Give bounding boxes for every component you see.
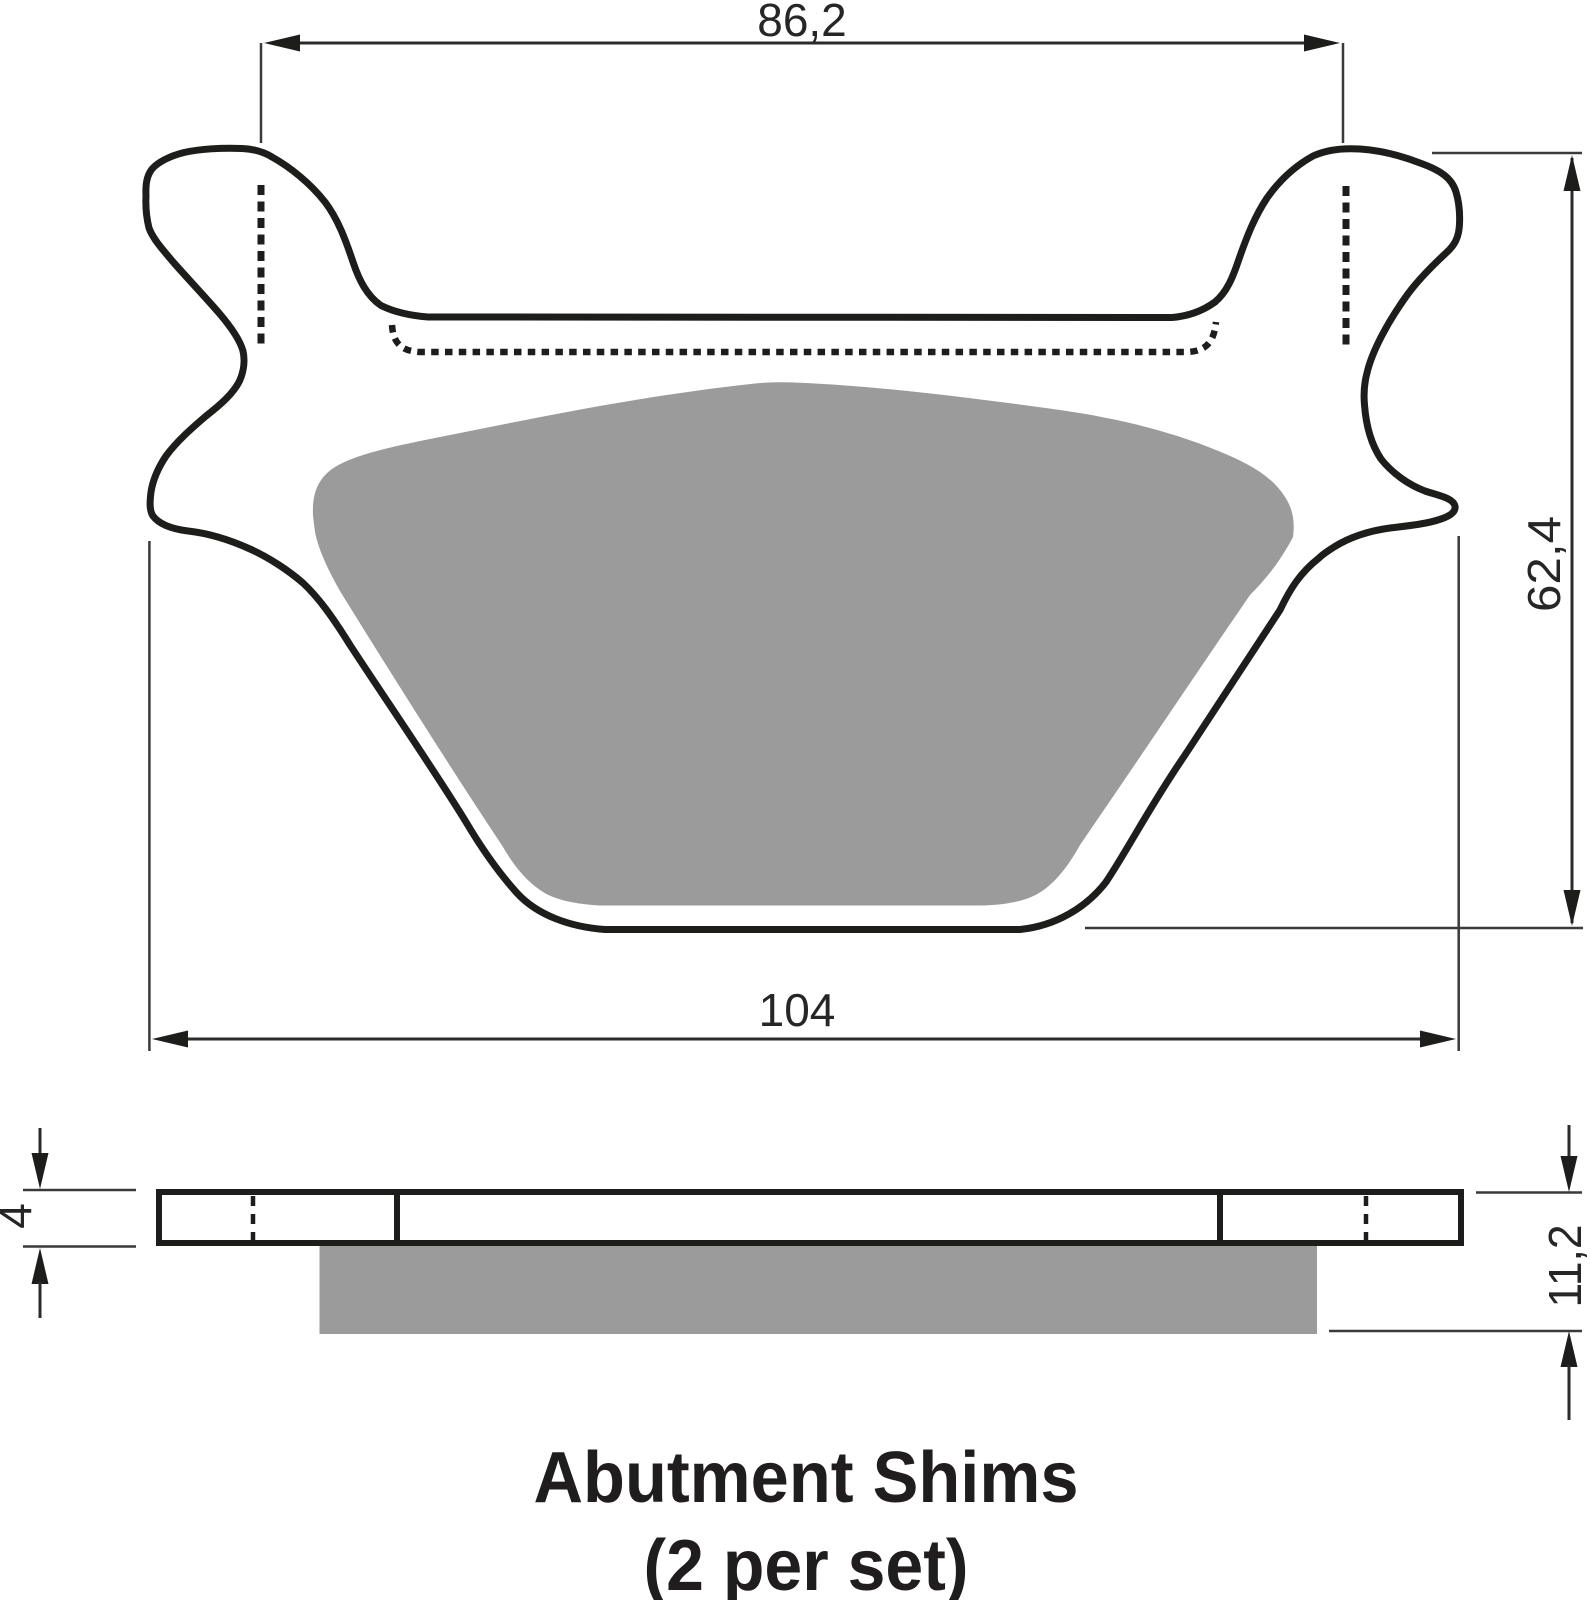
svg-text:86,2: 86,2 bbox=[757, 0, 847, 46]
svg-text:104: 104 bbox=[759, 984, 836, 1036]
svg-text:Abutment Shims: Abutment Shims bbox=[534, 1438, 1079, 1518]
svg-text:11,2: 11,2 bbox=[1539, 1225, 1590, 1308]
svg-text:62,4: 62,4 bbox=[1518, 516, 1570, 612]
svg-text:4: 4 bbox=[0, 1203, 41, 1229]
svg-text:(2 per set): (2 per set) bbox=[644, 1526, 969, 1600]
